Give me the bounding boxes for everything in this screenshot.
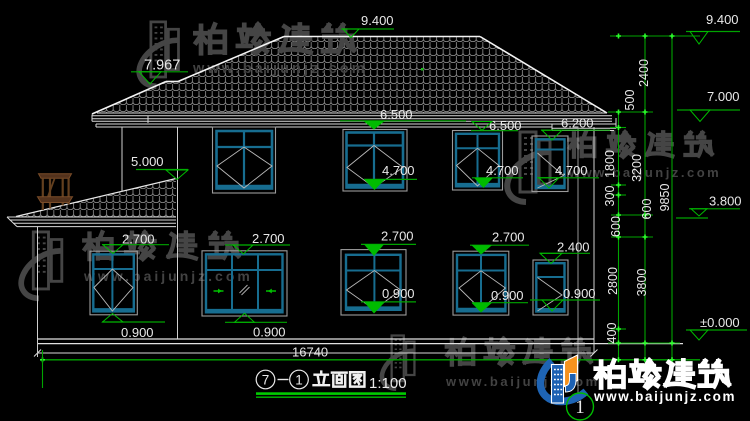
svg-text:3800: 3800 bbox=[635, 269, 649, 297]
svg-text:7.967: 7.967 bbox=[144, 58, 180, 74]
svg-text:0.900: 0.900 bbox=[491, 288, 524, 303]
svg-text:0.900: 0.900 bbox=[563, 286, 596, 301]
svg-text:16740: 16740 bbox=[292, 345, 328, 360]
svg-text:2.700: 2.700 bbox=[492, 230, 525, 245]
svg-text:4.700: 4.700 bbox=[382, 163, 415, 178]
svg-text:0.900: 0.900 bbox=[121, 325, 154, 340]
svg-text:7.000: 7.000 bbox=[707, 89, 740, 104]
svg-text:9850: 9850 bbox=[658, 184, 672, 212]
svg-text:4.700: 4.700 bbox=[555, 163, 588, 178]
svg-text:7: 7 bbox=[262, 373, 270, 388]
svg-text:1: 1 bbox=[295, 373, 303, 388]
svg-text:600: 600 bbox=[609, 216, 623, 237]
svg-text:1:100: 1:100 bbox=[369, 375, 407, 392]
svg-text:6.500: 6.500 bbox=[380, 107, 413, 122]
svg-text:2400: 2400 bbox=[637, 59, 651, 87]
svg-text:9.400: 9.400 bbox=[706, 12, 739, 27]
svg-text:5.000: 5.000 bbox=[131, 154, 164, 169]
svg-text:±0.000: ±0.000 bbox=[700, 315, 740, 330]
svg-text:3200: 3200 bbox=[630, 154, 644, 182]
svg-text:0.900: 0.900 bbox=[253, 325, 286, 340]
svg-text:2.400: 2.400 bbox=[557, 240, 590, 255]
svg-text:9.400: 9.400 bbox=[361, 13, 394, 28]
svg-text:2800: 2800 bbox=[606, 267, 620, 295]
svg-text:4.700: 4.700 bbox=[486, 163, 519, 178]
svg-text:www.baijunjz.com: www.baijunjz.com bbox=[593, 389, 736, 404]
svg-text:500: 500 bbox=[623, 90, 637, 111]
svg-text:0.900: 0.900 bbox=[382, 286, 415, 301]
svg-text:300: 300 bbox=[603, 186, 617, 207]
svg-text:2.700: 2.700 bbox=[252, 231, 285, 246]
svg-text:1: 1 bbox=[575, 397, 585, 418]
svg-text:600: 600 bbox=[640, 199, 654, 220]
svg-text:3.800: 3.800 bbox=[709, 194, 742, 209]
svg-text:www.baijunjz.com: www.baijunjz.com bbox=[192, 61, 368, 77]
svg-text:1800: 1800 bbox=[603, 150, 617, 178]
svg-text:2.700: 2.700 bbox=[381, 229, 414, 244]
svg-text:6.200: 6.200 bbox=[561, 116, 594, 131]
svg-text:400: 400 bbox=[605, 323, 619, 344]
